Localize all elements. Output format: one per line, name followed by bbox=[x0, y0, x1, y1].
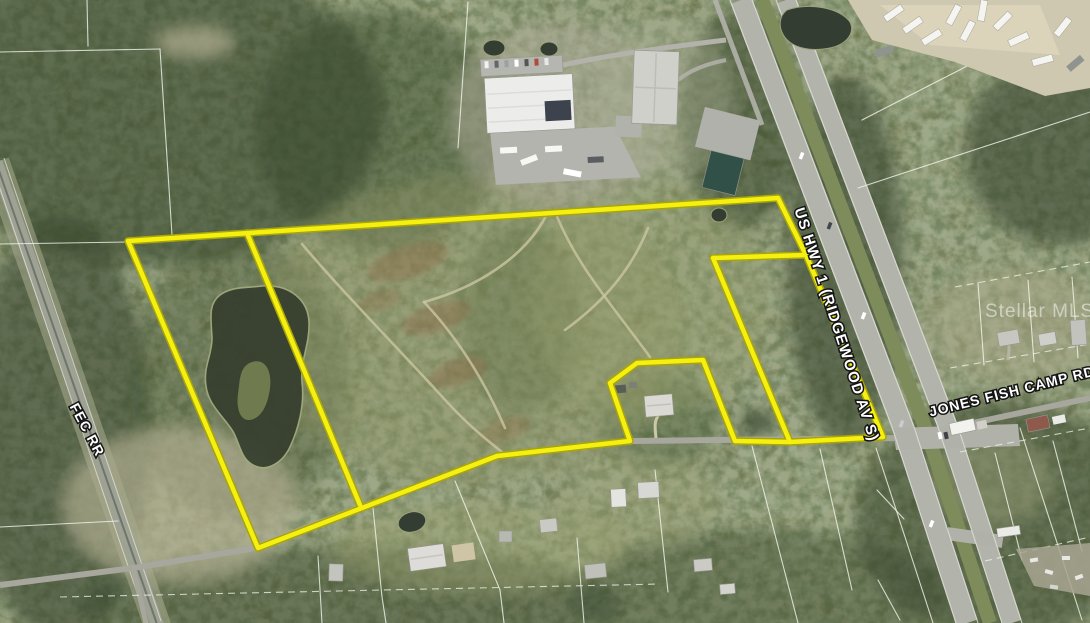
south-house-7 bbox=[720, 583, 736, 594]
south-house-4 bbox=[611, 489, 627, 508]
notch-house bbox=[644, 394, 674, 417]
notch-shed-2 bbox=[629, 382, 637, 389]
west-house bbox=[329, 564, 344, 581]
retention-pond bbox=[483, 40, 505, 56]
south-house-5 bbox=[638, 481, 660, 498]
watermark: Stellar MLS bbox=[985, 301, 1090, 322]
south-shed bbox=[499, 531, 512, 542]
aerial-map[interactable]: US HWY 1 (RIDGEWOOD AV S)JONES FISH CAMP… bbox=[0, 0, 1090, 623]
east-house-2 bbox=[1038, 332, 1057, 347]
east-house-3 bbox=[1070, 319, 1087, 345]
boundary-interior-line-2 bbox=[713, 255, 806, 258]
south-house-3 bbox=[584, 563, 606, 579]
south-house-6 bbox=[694, 558, 713, 572]
small-pond bbox=[711, 208, 727, 222]
south-house-2 bbox=[539, 518, 557, 533]
retention-pond-2 bbox=[540, 42, 558, 56]
